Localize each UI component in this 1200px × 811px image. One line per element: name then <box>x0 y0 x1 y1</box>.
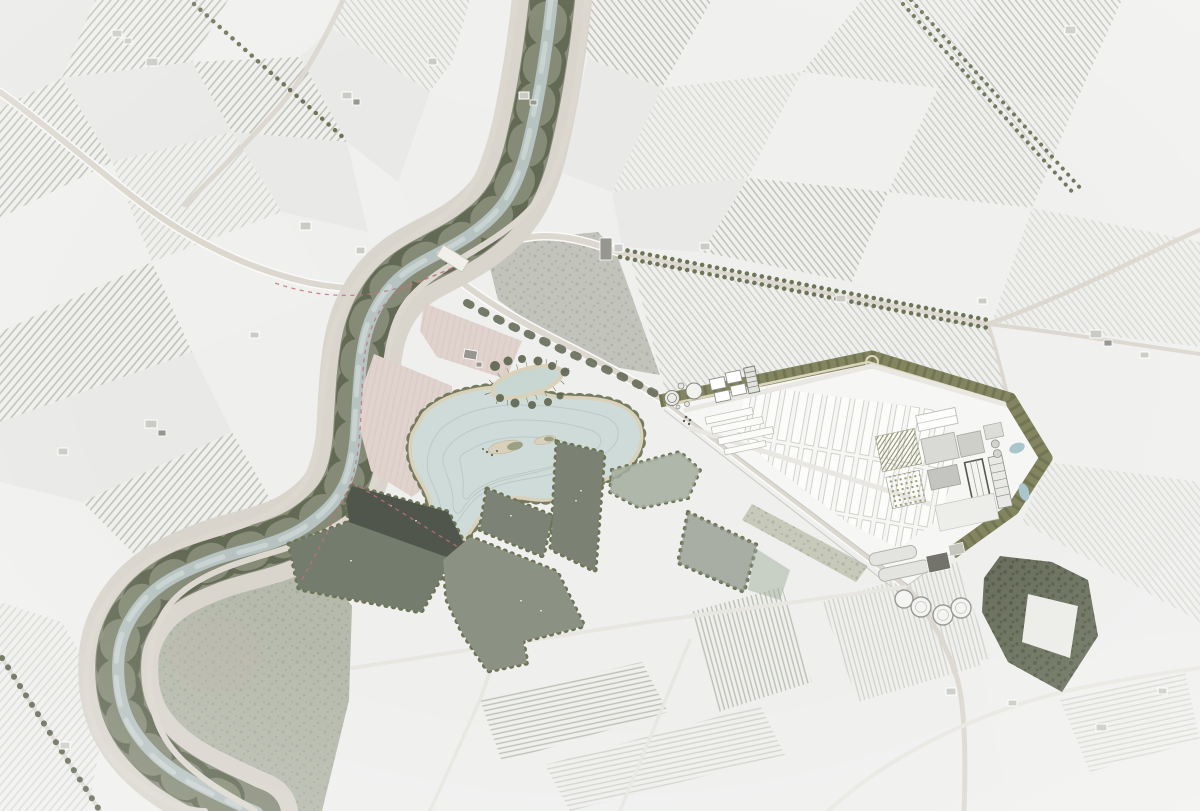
masterplan-svg: Aerial masterplan — river landscape with… <box>0 0 1200 811</box>
photo-haze-overlay <box>0 0 1200 811</box>
aerial-masterplan: Aerial masterplan — river landscape with… <box>0 0 1200 811</box>
